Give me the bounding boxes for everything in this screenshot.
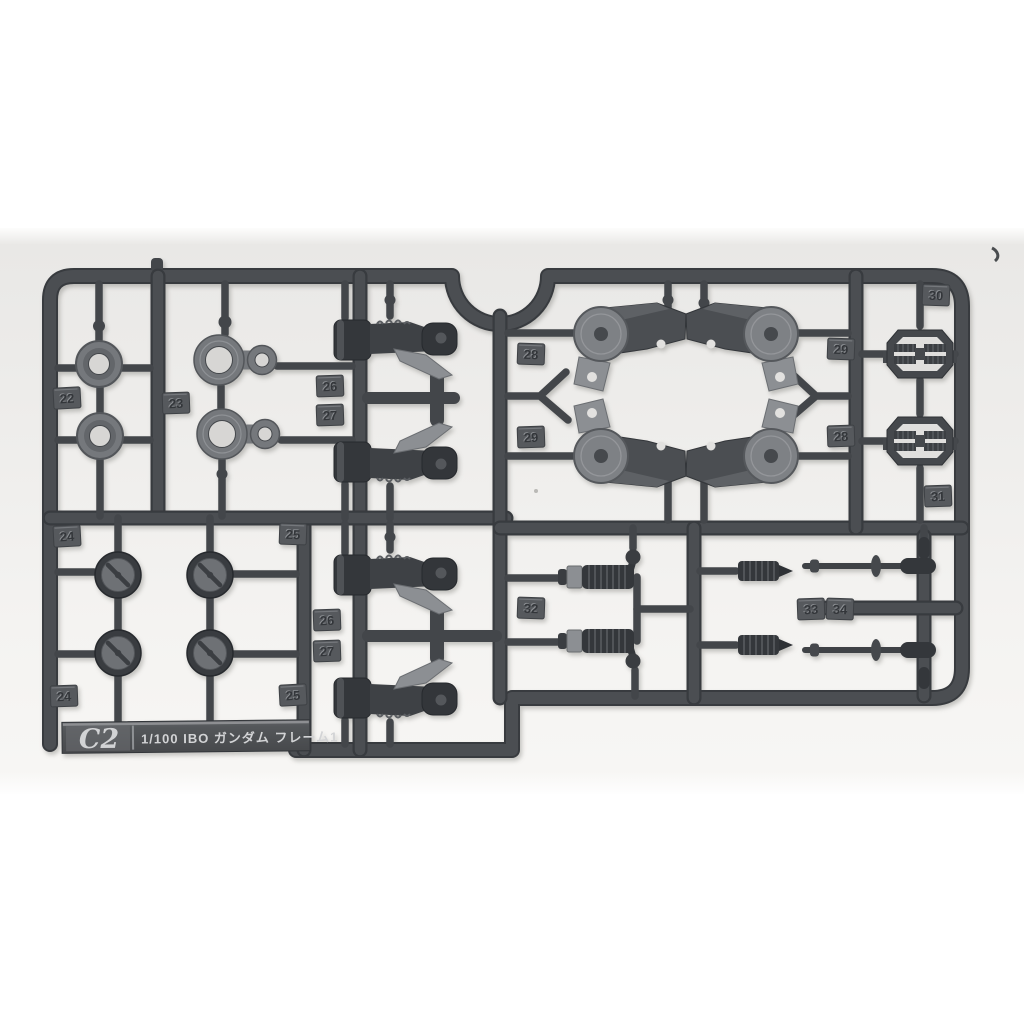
svg-text:29: 29 — [524, 430, 539, 445]
runner-label-description: 1/100 IBO ガンダム フレーム1 — [141, 729, 338, 746]
part-number-tag-22: 2222 — [53, 387, 81, 409]
part-number-tag-27: 2727 — [313, 640, 341, 662]
part-number-tag-24: 2424 — [50, 685, 78, 707]
part-24-disc — [95, 552, 141, 598]
product-photo: 2222 2323 2626 2727 2828 2929 — [0, 0, 1024, 1024]
part-number-tag-27: 2727 — [316, 404, 344, 426]
part-number-tag-25: 2525 — [279, 523, 307, 545]
svg-text:30: 30 — [928, 288, 943, 303]
part-number-tag-31: 3131 — [924, 485, 952, 507]
svg-text:34: 34 — [832, 602, 848, 618]
plate-divider — [132, 726, 134, 750]
part-number-tag-30: 3030 — [922, 284, 950, 306]
svg-text:28: 28 — [523, 347, 538, 362]
part-number-tag-32: 3232 — [517, 597, 545, 619]
part-25-disc — [187, 552, 233, 598]
svg-text:23: 23 — [169, 396, 184, 411]
part-number-tag-33: 3333 — [797, 598, 825, 620]
part-number-tag-26: 2626 — [316, 375, 344, 397]
part-34-pin — [919, 667, 930, 689]
svg-text:28: 28 — [834, 429, 849, 444]
svg-text:32: 32 — [523, 601, 538, 616]
svg-text:24: 24 — [57, 689, 73, 705]
svg-text:26: 26 — [323, 379, 338, 394]
dust-speck — [534, 489, 538, 493]
part-22-ring — [77, 413, 123, 459]
svg-text:24: 24 — [59, 529, 75, 545]
svg-text:26: 26 — [320, 613, 335, 628]
runner-label-code: C2 — [79, 724, 120, 755]
part-number-tag-34: 3434 — [826, 598, 854, 620]
svg-text:27: 27 — [320, 644, 335, 659]
part-number-tag-25: 2525 — [279, 684, 307, 706]
part-number-tag-26: 2626 — [313, 609, 341, 631]
part-30-bracket — [883, 330, 957, 378]
svg-text:27: 27 — [323, 408, 338, 423]
part-number-tag-28: 2828 — [827, 425, 855, 447]
runner-label-plate: C2 1/100 IBO ガンダム フレーム1 — [62, 719, 339, 755]
part-number-tag-29: 2929 — [517, 426, 545, 448]
svg-text:29: 29 — [833, 342, 848, 357]
svg-text:31: 31 — [931, 489, 946, 504]
svg-text:25: 25 — [285, 527, 300, 542]
part-number-tag-23: 2323 — [162, 392, 190, 414]
svg-text:22: 22 — [59, 391, 74, 407]
svg-text:33: 33 — [804, 602, 819, 617]
part-number-tag-24: 2424 — [53, 525, 81, 547]
part-34-pin — [919, 537, 930, 559]
part-25-disc — [187, 630, 233, 676]
part-22-ring — [76, 341, 122, 387]
part-31-bracket — [883, 417, 957, 465]
part-number-tag-29: 2929 — [827, 338, 855, 360]
part-number-tag-28: 2828 — [517, 343, 545, 365]
svg-text:25: 25 — [285, 688, 300, 704]
part-24-disc — [95, 630, 141, 676]
